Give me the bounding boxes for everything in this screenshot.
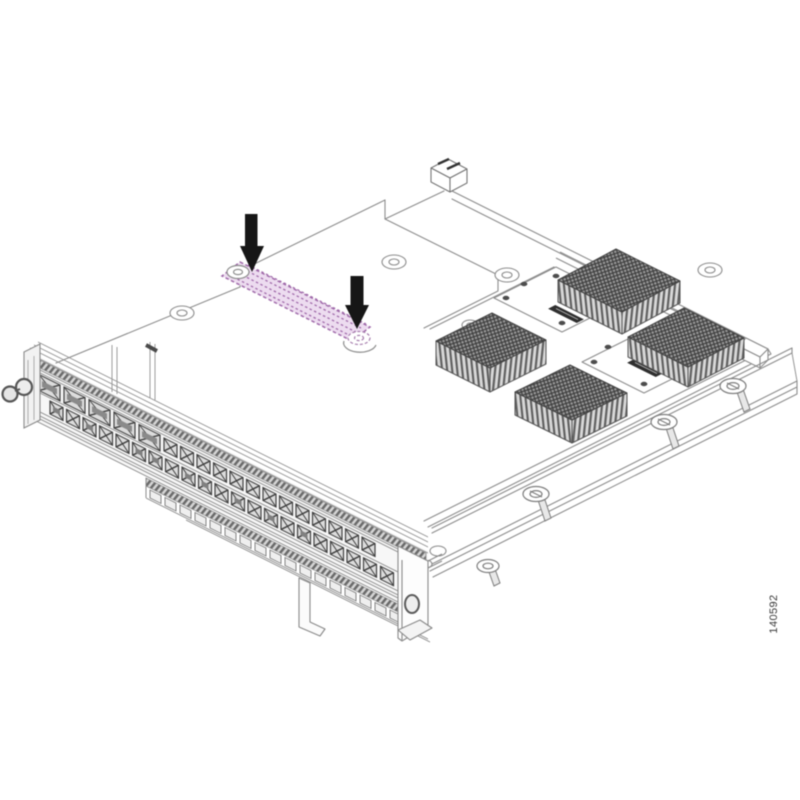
- svg-text:140592: 140592: [768, 594, 780, 633]
